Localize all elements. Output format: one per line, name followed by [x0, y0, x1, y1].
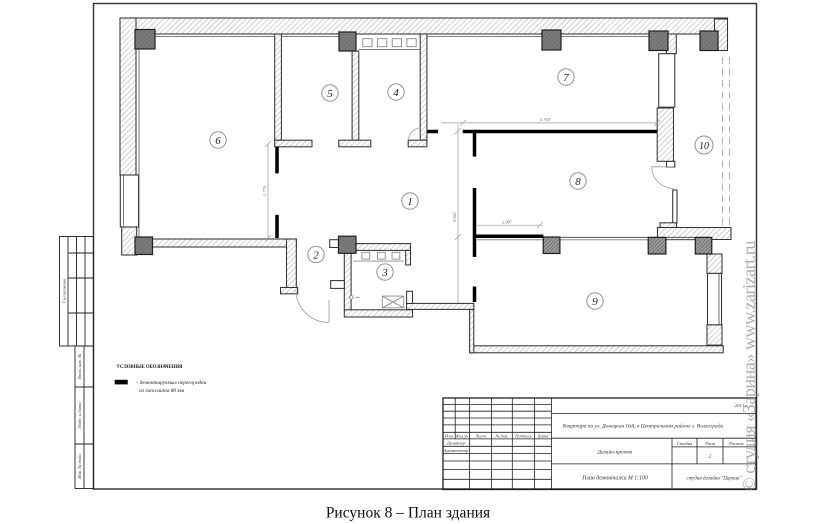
svg-text:6: 6 [215, 135, 221, 147]
svg-text:Дизайн-проект: Дизайн-проект [597, 449, 633, 456]
svg-text:7: 7 [563, 72, 569, 84]
svg-text:Дата: Дата [537, 433, 550, 438]
svg-text:2.776: 2.776 [262, 185, 267, 196]
svg-text:Лист: Лист [704, 441, 716, 446]
svg-text:1: 1 [407, 196, 413, 208]
svg-text:УСЛОВНЫЕ ОБОЗНАЧЕНИЯ: УСЛОВНЫЕ ОБОЗНАЧЕНИЯ [117, 365, 184, 370]
svg-text:- демонтируемые перегородки: - демонтируемые перегородки [137, 379, 207, 386]
svg-text:студия дизайна "Царица": студия дизайна "Царица" [686, 476, 742, 482]
svg-text:3: 3 [381, 267, 388, 279]
svg-text:2.097: 2.097 [502, 220, 513, 225]
svg-text:Квартира по ул. Донецкая 16А,: Квартира по ул. Донецкая 16А, в Централь… [562, 423, 724, 430]
svg-text:из гипсолита 80 мм: из гипсолита 80 мм [139, 388, 185, 394]
svg-text:Лист: Лист [474, 433, 486, 438]
svg-text:Дизайнер: Дизайнер [446, 441, 466, 446]
svg-text:2: 2 [313, 249, 319, 261]
svg-text:4: 4 [393, 87, 399, 99]
svg-text:Кол.уч: Кол.уч [455, 433, 469, 438]
svg-text:5.764: 5.764 [540, 117, 551, 122]
svg-text:2: 2 [709, 454, 712, 460]
svg-text:9: 9 [592, 296, 598, 308]
svg-text:Согласовано: Согласовано [62, 278, 67, 303]
svg-text:8: 8 [575, 176, 581, 188]
svg-text:№ док.: № док. [494, 433, 508, 438]
svg-text:План демонтажа М 1:100: План демонтажа М 1:100 [581, 475, 648, 482]
svg-text:5.942: 5.942 [452, 211, 457, 222]
svg-text:Архитектор: Архитектор [443, 448, 469, 453]
svg-text:Взам. инв. №: Взам. инв. № [77, 353, 82, 379]
svg-text:Стадия: Стадия [677, 441, 693, 446]
svg-text:Изм: Изм [444, 433, 453, 438]
svg-text:5: 5 [327, 88, 333, 100]
svg-text:Подпись: Подпись [514, 433, 532, 438]
svg-text:© студия «Зарина» www.zarizart: © студия «Зарина» www.zarizart.ru [739, 241, 759, 491]
svg-text:10: 10 [699, 141, 709, 152]
svg-text:Инв. № подл.: Инв. № подл. [77, 453, 82, 479]
svg-text:Подп. и дата: Подп. и дата [77, 402, 82, 430]
svg-text:Рисунок 8 – План здания: Рисунок 8 – План здания [326, 505, 490, 522]
